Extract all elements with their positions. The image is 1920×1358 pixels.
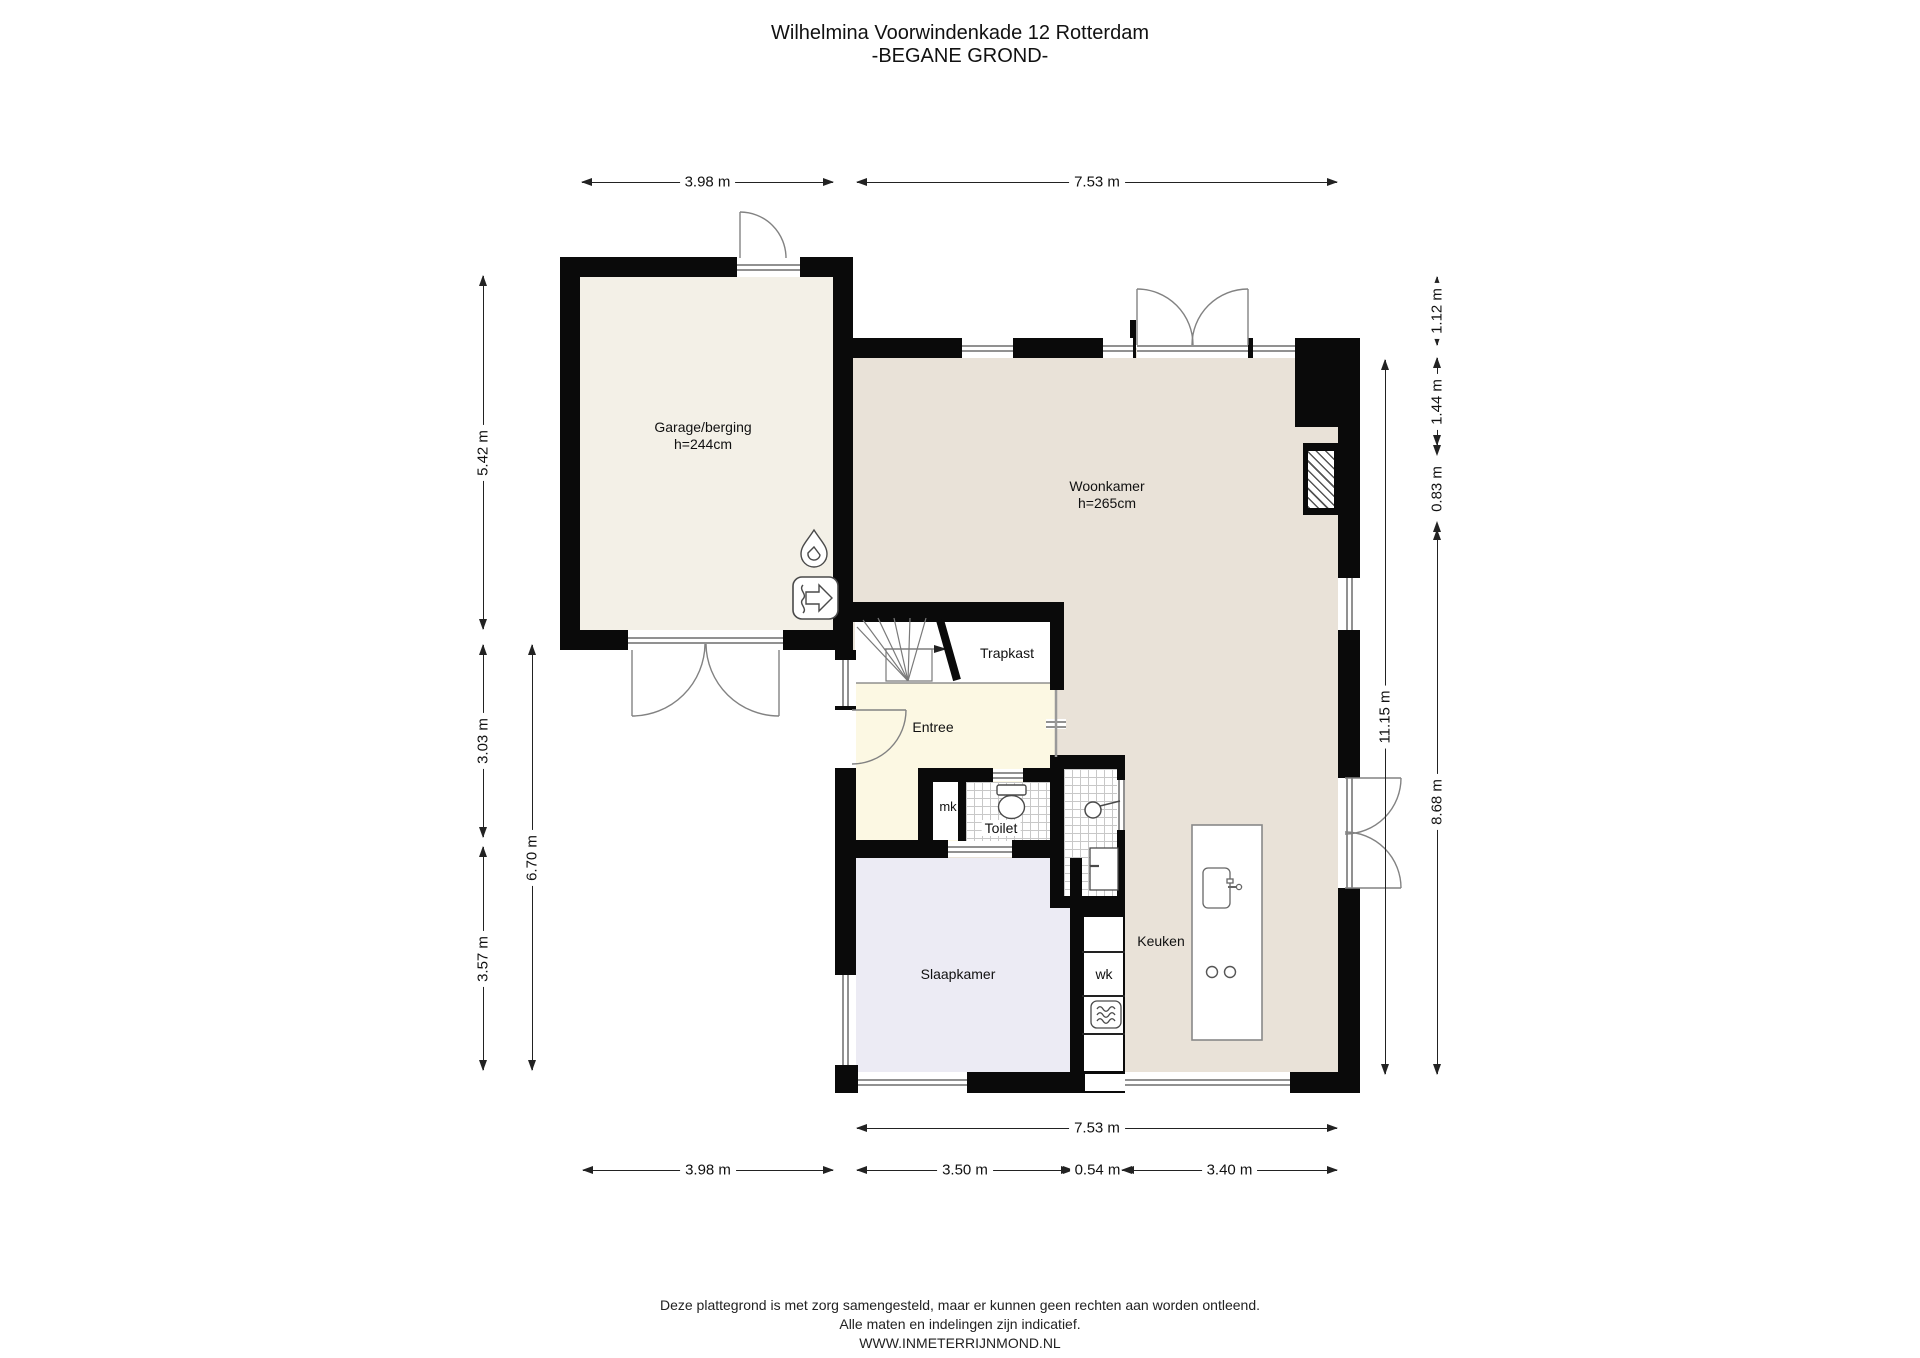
bottom-left-corner-wall: [835, 1065, 858, 1093]
top-wall-segment: [833, 338, 962, 358]
garage-left-wall: [560, 257, 580, 650]
bottom-wall-segment: [967, 1072, 1085, 1093]
top-wall-segment: [1013, 338, 1103, 358]
bottom-right-corner-wall: [1290, 1072, 1360, 1093]
right-wall-lower: [1338, 888, 1360, 1073]
cabinet-column: [1082, 915, 1125, 1073]
room-label-trapkast: Trapkast: [980, 645, 1034, 661]
room-label-toilet: Toilet: [982, 820, 1021, 836]
slaapkamer-right-wall: [1070, 858, 1082, 1073]
room-label-wk: wk: [1095, 966, 1112, 982]
bedroom-door-sill: [948, 841, 1012, 857]
cabinet-divider: [1082, 951, 1125, 953]
right-wall-upper: [1338, 338, 1360, 578]
shower-right-wall-upper: [1117, 755, 1125, 780]
cabinet-divider: [1082, 995, 1125, 997]
garage-side-door: [740, 212, 786, 258]
disclaimer-line1: Deze plattegrond is met zorg samengestel…: [0, 1296, 1920, 1315]
window: [962, 338, 1013, 358]
room-label-entree: Entree: [912, 719, 953, 735]
shower-door-sill: [1117, 780, 1125, 830]
room-height-garage: h=244cm: [674, 436, 732, 452]
room-label-garage: Garage/berging: [654, 419, 751, 435]
garage-bottom-wall-right: [783, 630, 853, 650]
toilet-door-sill: [993, 769, 1023, 781]
shower-bottom-wall: [1050, 896, 1125, 908]
cabinet-divider: [1082, 1033, 1125, 1035]
garage-double-door: [632, 644, 779, 716]
room-label-keuken: Keuken: [1137, 933, 1184, 949]
page-subtitle: -BEGANE GROND-: [0, 45, 1920, 68]
stairs-top-wall: [835, 602, 1064, 622]
french-door-sill: [1137, 338, 1248, 358]
garage-floor: [570, 267, 843, 640]
garage-bottom-wall-left: [560, 630, 630, 650]
shaft-hatching: [1308, 451, 1334, 508]
window: [835, 975, 856, 1065]
toilet-shower-divider-wall: [1050, 755, 1064, 908]
room-label-woonkamer: Woonkamer: [1069, 478, 1144, 494]
window: [835, 660, 856, 706]
shower-top-wall: [1050, 755, 1125, 769]
trapkast-right-wall: [1050, 602, 1064, 690]
room-height-woonkamer: h=265cm: [1078, 495, 1136, 511]
partition-tick: [1046, 719, 1066, 729]
website-url: WWW.INMETERRIJNMOND.NL: [0, 1334, 1920, 1353]
garage-double-door-sill: [628, 630, 783, 650]
front-door-opening: [835, 710, 856, 768]
bottom-wall-under-cabinet: [1085, 1072, 1125, 1093]
french-door-sill: [1338, 778, 1360, 888]
window: [858, 1072, 967, 1093]
slaapkamer-top-wall-left: [836, 840, 948, 858]
right-wall-middle: [1338, 630, 1360, 778]
room-label-mk: mk: [939, 799, 956, 815]
room-label-slaapkamer: Slaapkamer: [921, 966, 996, 982]
toilet-top-wall-right: [1023, 768, 1050, 782]
slaapkamer-top-wall-right: [1012, 840, 1062, 858]
window: [1125, 1072, 1290, 1093]
garage-top-wall-left: [560, 257, 737, 277]
left-wall-lower: [835, 768, 856, 975]
garage-door-sill: [737, 257, 800, 277]
meterkast-left-wall: [918, 768, 933, 840]
floorplan-page: Wilhelmina Voorwindenkade 12 Rotterdam -…: [0, 0, 1920, 1358]
disclaimer-line2: Alle maten en indelingen zijn indicatief…: [0, 1315, 1920, 1334]
window: [1338, 578, 1360, 630]
page-title: Wilhelmina Voorwindenkade 12 Rotterdam: [0, 22, 1920, 45]
window: [1253, 338, 1295, 358]
garage-right-wall: [833, 257, 853, 650]
top-french-doors: [1137, 289, 1248, 345]
window: [1103, 338, 1133, 358]
